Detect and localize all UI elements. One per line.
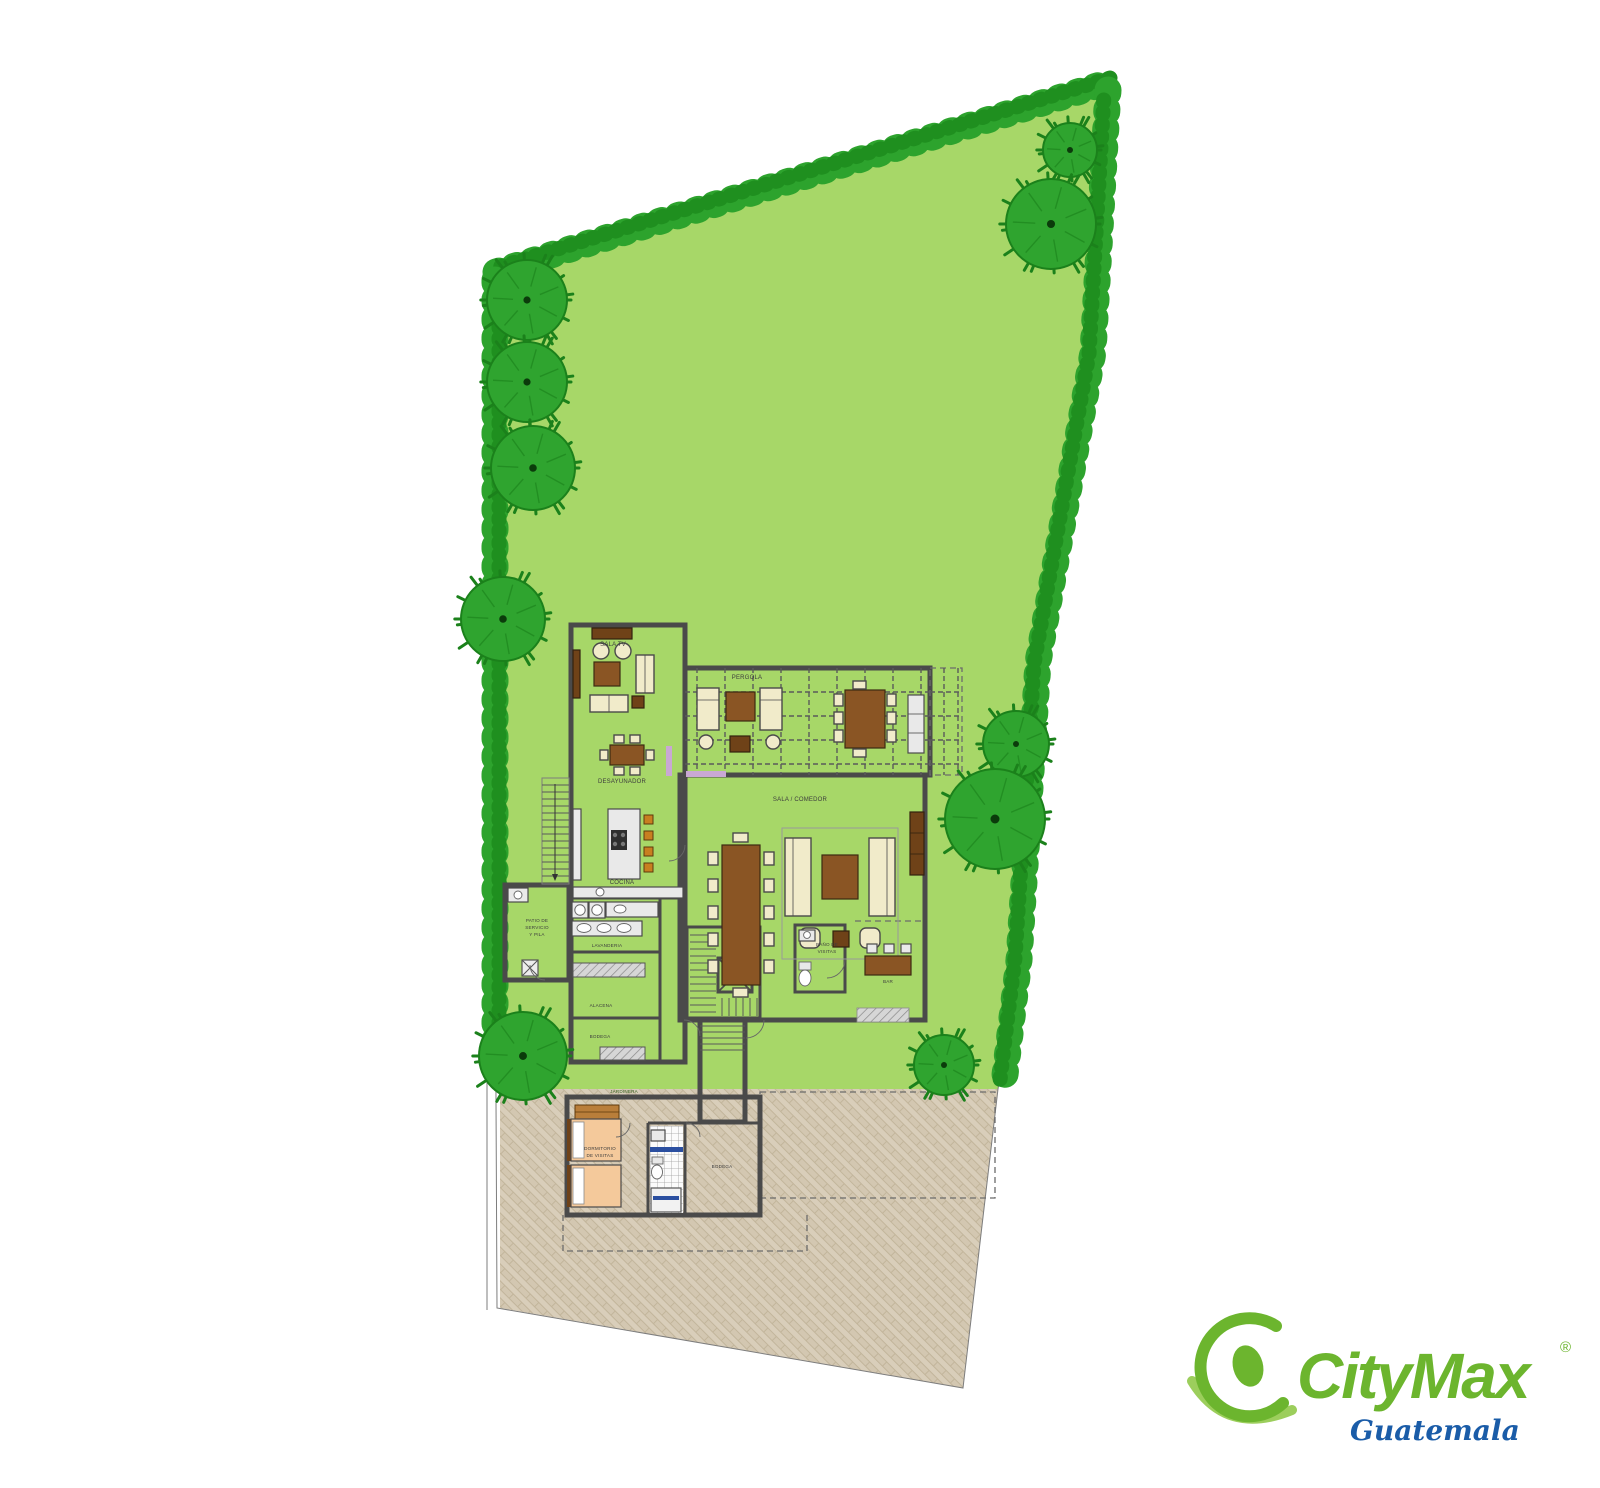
side-table xyxy=(632,696,644,708)
kitchen-counter-bottom xyxy=(573,887,683,898)
room-label-pergola: PERGOLA xyxy=(732,675,762,681)
site-plan-page: SALA TV DESAYUNADOR COCINA PERGOLA SALA … xyxy=(0,0,1600,1488)
bed xyxy=(567,1165,621,1207)
room-label-sala-comedor: SALA / COMEDOR xyxy=(773,797,828,803)
room-label-alacena: ALACENA xyxy=(590,1003,614,1008)
room-label-dormitorio-1: DORMITORIO xyxy=(584,1146,616,1151)
room-label-dormitorio-2: DE VISITAS xyxy=(587,1153,614,1158)
room-label-sala-tv: SALA TV xyxy=(600,642,626,648)
console xyxy=(910,812,924,875)
pouf xyxy=(766,735,780,749)
accent-wall-lavender-v xyxy=(666,746,672,776)
room-label-patio-2: SERVICIO xyxy=(525,925,549,930)
sink xyxy=(651,1130,665,1141)
accent-wall-lavender-h xyxy=(686,771,726,777)
entry-mat xyxy=(857,1008,909,1022)
label-jardinera: JARDINERA xyxy=(610,1089,639,1094)
lounge-chair xyxy=(697,688,719,730)
toilet xyxy=(652,1165,663,1179)
tv-table xyxy=(594,662,620,686)
bar-area xyxy=(865,944,911,975)
pergola-table xyxy=(726,692,755,721)
toilet xyxy=(799,970,811,986)
lounge-chair xyxy=(760,688,782,730)
sofa xyxy=(785,838,811,916)
room-label-cocina: COCINA xyxy=(610,880,635,886)
citymax-region: Guatemala xyxy=(1350,1414,1520,1447)
room-label-desayunador: DESAYUNADOR xyxy=(598,779,647,785)
low-table xyxy=(730,736,750,752)
room-label-bodega: BODEGA xyxy=(590,1034,612,1039)
kitchen-sink xyxy=(596,888,604,896)
bath-accent xyxy=(650,1147,683,1152)
room-label-bano-1: BAÑO DE xyxy=(816,941,838,947)
room-label-lavanderia: LAVANDERIA xyxy=(592,943,623,948)
sofa xyxy=(869,838,895,916)
bar-counter xyxy=(865,956,911,975)
room-label-patio-1: PATIO DE xyxy=(526,918,548,923)
cooktop xyxy=(611,830,627,850)
kitchen-counter-left xyxy=(573,809,581,880)
citymax-logo-icon xyxy=(1192,1318,1292,1419)
room-label-bar: BAR xyxy=(883,979,894,984)
room-label-bano-2: VISITAS xyxy=(818,949,837,954)
citymax-wordmark: CityMax xyxy=(1297,1340,1533,1412)
room-label-patio-3: Y PILA xyxy=(529,932,545,937)
pantry-shelf xyxy=(573,963,645,977)
pouf xyxy=(699,735,713,749)
tv-console xyxy=(592,628,632,639)
registered-mark: ® xyxy=(1560,1339,1571,1356)
wall-unit xyxy=(573,650,580,698)
storage-shelf xyxy=(600,1047,645,1060)
citymax-logo: CityMax ® Guatemala xyxy=(1192,1318,1571,1447)
room-label-bodega-visitas: BODEGA xyxy=(712,1164,734,1169)
outdoor-dining-table xyxy=(845,690,885,748)
dining-table xyxy=(722,845,760,985)
outdoor-counter xyxy=(908,695,924,753)
site-plan-drawing: SALA TV DESAYUNADOR COCINA PERGOLA SALA … xyxy=(0,0,1600,1488)
coffee-table xyxy=(822,855,858,899)
